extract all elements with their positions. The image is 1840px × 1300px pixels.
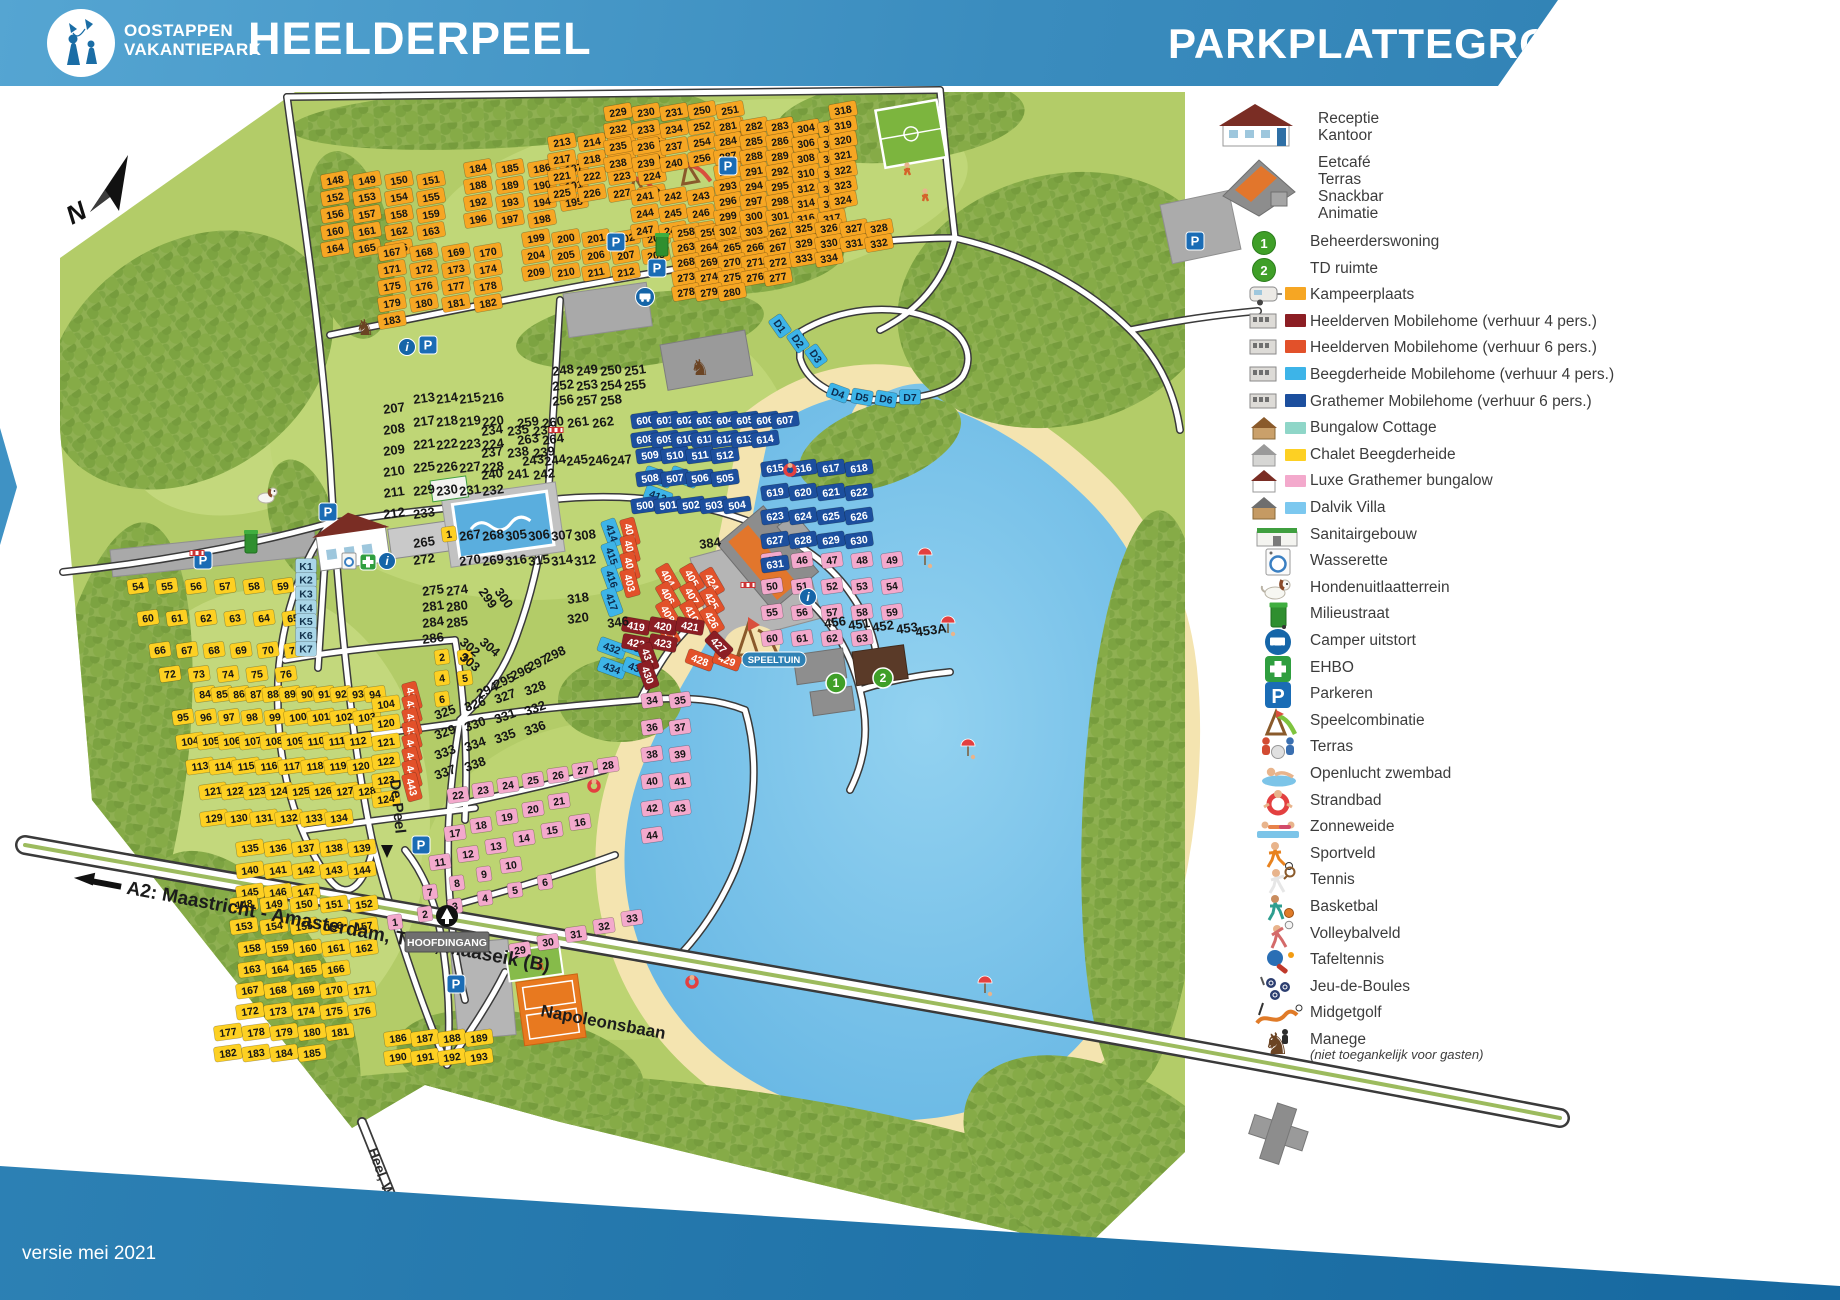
- svg-text:171: 171: [353, 984, 372, 998]
- svg-text:316: 316: [504, 551, 528, 569]
- plot-badge: 72: [158, 665, 181, 683]
- field-number: 226: [435, 458, 459, 476]
- svg-text:87: 87: [250, 688, 263, 702]
- svg-text:68: 68: [208, 644, 221, 658]
- svg-text:44: 44: [646, 829, 659, 843]
- compass-label: N: [61, 194, 93, 230]
- field-number: 213: [412, 389, 436, 407]
- svg-text:90: 90: [301, 688, 314, 702]
- svg-text:183: 183: [247, 1047, 266, 1061]
- svg-text:122: 122: [226, 785, 245, 799]
- plot-badge: 41: [668, 772, 691, 790]
- plot-badge: 60: [136, 609, 159, 627]
- svg-text:233: 233: [412, 504, 436, 522]
- svg-text:508: 508: [641, 472, 660, 486]
- svg-text:216: 216: [481, 389, 505, 407]
- sunbathe-icon: [1249, 813, 1311, 843]
- svg-text:127: 127: [336, 785, 355, 799]
- field-number: 286: [421, 629, 445, 647]
- camper-uitstort-icon: [636, 288, 655, 307]
- svg-text:625: 625: [822, 510, 841, 524]
- svg-text:131: 131: [255, 812, 274, 826]
- plot-badge: 53: [850, 577, 873, 595]
- svg-text:244: 244: [543, 451, 567, 469]
- svg-text:184: 184: [275, 1047, 294, 1061]
- svg-text:62: 62: [826, 632, 839, 646]
- plot-badge: K6: [295, 628, 316, 643]
- svg-text:451: 451: [847, 615, 871, 633]
- svg-text:456: 456: [823, 613, 847, 631]
- legend-label: Tafeltennis: [1310, 951, 1384, 969]
- svg-text:212: 212: [382, 504, 406, 522]
- svg-text:129: 129: [205, 812, 224, 826]
- legend-item-manege: ♞Manege(niet toegankelijk voor gasten): [1205, 1040, 1835, 1067]
- plot-badge: 15: [540, 821, 563, 839]
- legend-label: Volleybalveld: [1310, 925, 1400, 943]
- numbered-circle: 2: [873, 668, 893, 688]
- svg-text:139: 139: [353, 842, 372, 856]
- svg-text:93: 93: [352, 688, 365, 702]
- field-number: 211: [383, 483, 406, 501]
- field-number: 318: [566, 589, 590, 607]
- legend-label: Parkeren: [1310, 685, 1373, 703]
- svg-text:223: 223: [458, 435, 482, 453]
- field-number: 281: [421, 597, 445, 615]
- plot-badge: 43: [668, 799, 691, 817]
- milieustraat-icon: [244, 530, 258, 553]
- svg-text:114: 114: [214, 760, 233, 774]
- plot-badge: 9: [476, 866, 493, 883]
- svg-text:180: 180: [303, 1026, 322, 1040]
- legend-label: Snackbar: [1318, 188, 1383, 205]
- plot-badge: 55: [760, 603, 783, 621]
- plot-badge: 74: [216, 665, 239, 683]
- svg-text:231: 231: [458, 481, 482, 499]
- legend-label: Dalvik Villa: [1310, 499, 1386, 517]
- svg-text:60: 60: [766, 632, 779, 646]
- plot-badge: 27: [571, 761, 594, 779]
- legend-label: Midgetgolf: [1310, 1004, 1382, 1022]
- field-number: 237: [480, 443, 504, 461]
- plot-badge: 4: [434, 670, 451, 687]
- plot-badge: 6: [537, 874, 554, 891]
- svg-text:2: 2: [880, 671, 887, 685]
- parking-icon: P: [607, 233, 625, 251]
- svg-text:158: 158: [243, 942, 262, 956]
- info-icon: i: [800, 589, 817, 606]
- legend-label: Kantoor: [1318, 127, 1379, 144]
- field-number: 245: [565, 451, 589, 469]
- svg-text:166: 166: [327, 963, 346, 977]
- svg-text:308: 308: [573, 526, 597, 544]
- svg-text:126: 126: [314, 785, 333, 799]
- svg-text:191: 191: [416, 1051, 435, 1065]
- svg-text:98: 98: [246, 711, 259, 725]
- svg-text:209: 209: [382, 441, 406, 459]
- svg-text:54: 54: [132, 580, 145, 594]
- field-number: 306: [527, 526, 551, 544]
- parking-icon: P: [419, 336, 437, 354]
- barrier-icon: [549, 428, 563, 433]
- svg-text:12: 12: [462, 848, 475, 862]
- svg-text:186: 186: [389, 1032, 408, 1046]
- svg-text:179: 179: [275, 1026, 294, 1040]
- ehbo-icon: [360, 554, 376, 570]
- svg-text:307: 307: [550, 526, 574, 544]
- svg-text:281: 281: [421, 597, 445, 615]
- plot-badge: 40: [640, 772, 663, 790]
- svg-text:123: 123: [248, 785, 267, 799]
- camper-icon: [1249, 627, 1311, 657]
- svg-text:130: 130: [230, 812, 249, 826]
- parking-icon: P: [319, 503, 337, 521]
- svg-text:280: 280: [445, 597, 469, 615]
- svg-text:256: 256: [551, 391, 575, 409]
- plot-badge: 39: [668, 745, 691, 763]
- svg-text:140: 140: [241, 864, 260, 878]
- svg-text:38: 38: [646, 748, 659, 762]
- svg-text:75: 75: [251, 668, 264, 682]
- field-number: 234: [480, 421, 504, 439]
- svg-text:255: 255: [623, 376, 647, 394]
- svg-text:237: 237: [480, 443, 504, 461]
- svg-text:K5: K5: [299, 616, 313, 628]
- svg-text:10: 10: [505, 859, 518, 873]
- svg-text:218: 218: [435, 412, 459, 430]
- svg-text:210: 210: [382, 462, 406, 480]
- svg-text:37: 37: [674, 721, 687, 735]
- parking-icon: P: [1186, 232, 1204, 250]
- plot-badge: 56: [790, 603, 813, 621]
- plot-badge: 67: [175, 641, 198, 659]
- svg-text:67: 67: [181, 644, 194, 658]
- svg-text:48: 48: [856, 554, 869, 568]
- plot-badge: 69: [229, 641, 252, 659]
- plot-badge: 8: [449, 875, 466, 892]
- svg-text:190: 190: [389, 1051, 408, 1065]
- plot-badge: 24: [496, 776, 519, 794]
- eetcafe-building-icon: [1213, 152, 1301, 218]
- svg-text:167: 167: [241, 984, 260, 998]
- svg-text:69: 69: [235, 644, 248, 658]
- svg-text:1: 1: [833, 676, 840, 690]
- version-label: versie mei 2021: [22, 1243, 156, 1265]
- plot-badge: 32: [592, 917, 615, 935]
- svg-text:D6: D6: [878, 393, 893, 407]
- parking-icon: P: [1249, 680, 1311, 710]
- field-number: 230: [435, 481, 459, 499]
- field-number: 315: [527, 551, 551, 569]
- svg-text:137: 137: [297, 842, 316, 856]
- legend-label: Sanitairgebouw: [1310, 526, 1417, 544]
- plot-badge: 54: [126, 577, 149, 595]
- svg-text:K6: K6: [299, 630, 313, 642]
- svg-text:121: 121: [204, 785, 223, 799]
- svg-text:318: 318: [566, 589, 590, 607]
- plot-badge: 58: [242, 577, 265, 595]
- plot-badge: 35: [668, 691, 691, 709]
- svg-text:509: 509: [641, 449, 660, 463]
- svg-text:72: 72: [164, 668, 177, 682]
- field-number: 312: [573, 551, 597, 569]
- plot-badge: 97: [217, 708, 240, 726]
- field-number: 280: [445, 597, 469, 615]
- svg-text:138: 138: [325, 842, 344, 856]
- plot-badge: 26: [546, 766, 569, 784]
- svg-text:174: 174: [297, 1005, 316, 1019]
- legend-label: Beheerderswoning: [1310, 233, 1439, 251]
- field-number: 305: [504, 526, 528, 544]
- parking-icon: P: [447, 975, 465, 993]
- svg-text:246: 246: [587, 451, 611, 469]
- field-number: 207: [382, 399, 406, 417]
- plot-badge: 61: [790, 629, 813, 647]
- legend-label: Terras: [1310, 738, 1353, 756]
- svg-text:265: 265: [412, 533, 436, 551]
- svg-text:452: 452: [871, 617, 895, 635]
- house-villa-icon: [1249, 494, 1311, 524]
- svg-text:165: 165: [299, 963, 318, 977]
- brand-line1: OOSTAPPEN: [124, 21, 261, 40]
- house-lux-icon: [1249, 467, 1311, 497]
- plot-badge: 75: [245, 665, 268, 683]
- svg-text:61: 61: [796, 632, 809, 646]
- svg-text:177: 177: [219, 1026, 238, 1040]
- svg-text:55: 55: [161, 580, 174, 594]
- parking-icon: P: [719, 157, 737, 175]
- svg-text:621: 621: [822, 486, 841, 500]
- svg-text:24: 24: [502, 779, 515, 793]
- svg-text:626: 626: [850, 510, 869, 524]
- svg-text:230: 230: [435, 481, 459, 499]
- plot-badge: 42: [640, 799, 663, 817]
- field-number: 346: [606, 613, 630, 631]
- svg-text:227: 227: [458, 458, 482, 476]
- svg-text:163: 163: [243, 963, 262, 977]
- plot-badge: 56: [184, 577, 207, 595]
- svg-text:384: 384: [698, 534, 722, 552]
- field-number: 275: [421, 581, 445, 599]
- golf-icon: [1249, 999, 1311, 1029]
- svg-text:95: 95: [177, 711, 190, 725]
- svg-text:511: 511: [691, 449, 710, 463]
- plot-badge: 31: [564, 925, 587, 943]
- plot-badge: 7: [422, 884, 439, 901]
- svg-text:500: 500: [636, 499, 655, 513]
- washer-icon: [1249, 547, 1311, 577]
- svg-text:36: 36: [646, 721, 659, 735]
- wasserette-icon: [342, 553, 356, 569]
- svg-text:501: 501: [659, 499, 678, 513]
- svg-text:27: 27: [577, 764, 590, 778]
- field-number: 212: [382, 504, 406, 522]
- svg-text:623: 623: [766, 510, 785, 524]
- field-number: 258: [599, 391, 623, 409]
- legend-label: Heelderven Mobilehome (verhuur 6 pers.): [1310, 339, 1597, 357]
- swim-icon: [1249, 760, 1311, 790]
- svg-text:614: 614: [756, 433, 775, 447]
- field-number: 314: [550, 551, 574, 569]
- plot-badge: 73: [187, 665, 210, 683]
- info-icon: i: [379, 553, 396, 570]
- terras-icon: [1249, 733, 1311, 763]
- field-number: 217: [412, 412, 436, 430]
- svg-text:50: 50: [766, 580, 779, 594]
- speeltuin-sign: SPEELTUIN: [742, 652, 806, 667]
- svg-text:117: 117: [283, 760, 302, 774]
- field-number: 307: [550, 526, 574, 544]
- svg-text:P: P: [452, 977, 461, 992]
- svg-text:42: 42: [646, 802, 659, 816]
- heel-wessem-label: Heel, Wessem: [365, 1146, 412, 1240]
- svg-text:16: 16: [574, 816, 587, 830]
- legend-label: Grathemer Mobilehome (verhuur 6 pers.): [1310, 393, 1592, 411]
- mobilehome-icon: [1249, 361, 1311, 391]
- svg-text:61: 61: [171, 612, 184, 626]
- svg-text:152: 152: [355, 898, 374, 912]
- svg-text:262: 262: [591, 413, 615, 431]
- svg-text:66: 66: [154, 644, 167, 658]
- svg-text:173: 173: [269, 1005, 288, 1019]
- legend-label: Bungalow Cottage: [1310, 419, 1437, 437]
- svg-text:41: 41: [674, 775, 687, 789]
- svg-text:♞: ♞: [355, 315, 375, 340]
- svg-text:192: 192: [443, 1051, 462, 1065]
- plot-badge: 62: [820, 629, 843, 647]
- info-icon: i: [399, 339, 416, 356]
- plot-badge: 182: [213, 1044, 243, 1063]
- svg-text:91: 91: [318, 688, 331, 702]
- svg-text:P: P: [653, 261, 662, 276]
- plot-badge: 184: [269, 1044, 299, 1063]
- svg-text:102: 102: [335, 711, 354, 725]
- svg-text:270: 270: [458, 551, 482, 569]
- svg-text:132: 132: [280, 812, 299, 826]
- svg-text:219: 219: [458, 412, 482, 430]
- svg-text:178: 178: [247, 1026, 266, 1040]
- svg-text:135: 135: [241, 842, 260, 856]
- svg-text:120: 120: [352, 760, 371, 774]
- legend-label: Tennis: [1310, 871, 1355, 889]
- svg-text:229: 229: [412, 481, 436, 499]
- house-chalet-icon: [1249, 441, 1311, 471]
- plot-badge: 64: [252, 609, 275, 627]
- mobilehome-icon: [1249, 308, 1311, 338]
- plot-badge: 14: [512, 829, 535, 847]
- plot-badge: 22: [446, 786, 469, 804]
- svg-text:33: 33: [626, 912, 639, 926]
- parkmap-page: 1481491501511521531541551561571581591601…: [0, 0, 1840, 1300]
- svg-text:503: 503: [705, 499, 724, 513]
- svg-text:121: 121: [377, 736, 396, 750]
- svg-text:120: 120: [377, 717, 396, 731]
- svg-text:627: 627: [766, 534, 785, 548]
- svg-text:73: 73: [193, 668, 206, 682]
- svg-text:615: 615: [766, 462, 785, 476]
- svg-text:96: 96: [200, 711, 213, 725]
- svg-text:124: 124: [270, 785, 289, 799]
- svg-text:89: 89: [284, 688, 297, 702]
- svg-text:46: 46: [796, 554, 809, 568]
- plot-badge: 25: [521, 771, 544, 789]
- plot-badge: K4: [295, 600, 316, 615]
- field-number: 232: [481, 481, 505, 499]
- legend-label: TD ruimte: [1310, 260, 1378, 278]
- edge-decoration: [0, 428, 17, 545]
- plot-badge: 96: [194, 708, 217, 726]
- svg-text:159: 159: [271, 942, 290, 956]
- field-number: 225: [412, 458, 436, 476]
- svg-text:631: 631: [766, 558, 785, 572]
- svg-text:116: 116: [260, 760, 279, 774]
- svg-text:40: 40: [646, 775, 659, 789]
- svg-text:113: 113: [191, 760, 210, 774]
- svg-text:104: 104: [377, 698, 396, 712]
- svg-text:35: 35: [674, 694, 687, 708]
- svg-text:D7: D7: [903, 392, 917, 404]
- svg-text:285: 285: [445, 613, 469, 631]
- legend-label: Chalet Beegderheide: [1310, 446, 1456, 464]
- plot-badge: 76: [274, 665, 297, 683]
- field-number: 208: [382, 420, 406, 438]
- caravan-icon: [1249, 281, 1311, 311]
- svg-text:17: 17: [449, 827, 462, 841]
- plot-badge: 1: [441, 526, 458, 543]
- svg-text:181: 181: [331, 1026, 350, 1040]
- svg-text:P: P: [612, 235, 621, 250]
- field-number: 456: [823, 613, 847, 631]
- svg-text:25: 25: [527, 774, 540, 788]
- plot-badge: 68: [202, 641, 225, 659]
- svg-text:272: 272: [412, 550, 436, 568]
- legend-label: Hondenuitlaatterrein: [1310, 579, 1450, 597]
- plot-badge: 20: [521, 800, 544, 818]
- brand-line2: VAKANTIEPARK: [124, 40, 261, 59]
- plot-badge: K5: [295, 614, 316, 629]
- plot-badge: K7: [295, 641, 316, 656]
- field-number: 246: [587, 451, 611, 469]
- svg-text:23: 23: [477, 784, 490, 798]
- svg-text:20: 20: [527, 803, 540, 817]
- svg-text:193: 193: [470, 1051, 489, 1065]
- field-number: 257: [575, 391, 599, 409]
- house-cottage-icon: [1249, 414, 1311, 444]
- svg-text:182: 182: [219, 1047, 238, 1061]
- plot-badge: 95: [171, 708, 194, 726]
- svg-text:47: 47: [826, 554, 839, 568]
- plot-badge: 4: [477, 890, 494, 907]
- plot-badge: 70: [256, 641, 279, 659]
- svg-text:54: 54: [886, 580, 899, 594]
- svg-text:22: 22: [452, 789, 465, 803]
- legend-label: Milieustraat: [1310, 605, 1389, 623]
- svg-text:263: 263: [516, 430, 540, 448]
- circle-1-icon: 1: [1249, 228, 1311, 258]
- field-number: 285: [445, 613, 469, 631]
- svg-text:258: 258: [599, 391, 623, 409]
- plot-badge: 12: [456, 845, 479, 863]
- svg-text:18: 18: [475, 819, 488, 833]
- field-number: 268: [481, 526, 505, 544]
- svg-text:118: 118: [306, 760, 325, 774]
- svg-text:100: 100: [289, 711, 308, 725]
- plot-badge: 5: [507, 882, 524, 899]
- svg-text:P: P: [1191, 234, 1200, 249]
- svg-text:142: 142: [297, 864, 316, 878]
- svg-text:64: 64: [258, 612, 271, 626]
- svg-text:K4: K4: [299, 602, 313, 614]
- svg-text:268: 268: [481, 526, 505, 544]
